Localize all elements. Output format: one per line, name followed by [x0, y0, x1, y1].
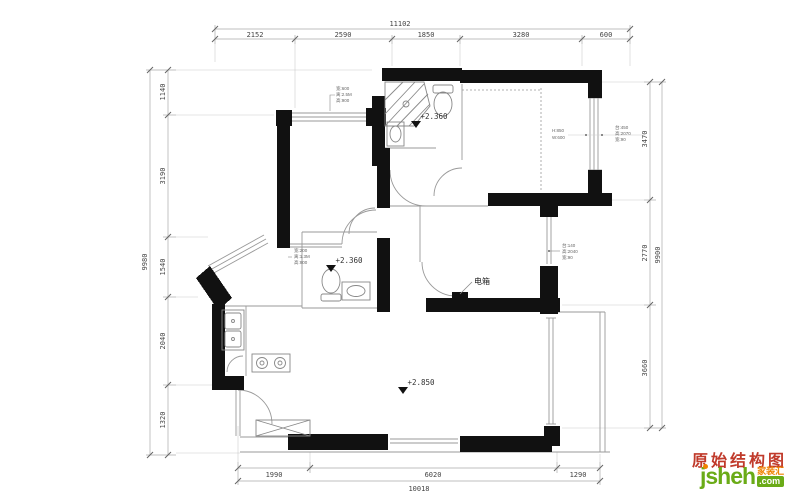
- logo-wordmark: jsheh: [700, 465, 755, 488]
- dim-bottom-seg: 1290: [570, 471, 587, 479]
- dim-right-seg: 2770: [641, 245, 649, 262]
- dim-top-total: 11102: [389, 20, 410, 28]
- level-label-living: +2.850: [407, 378, 435, 387]
- window-annotation: H:850: [552, 128, 565, 133]
- logo-tld: .com: [757, 476, 784, 487]
- window-annotation: 离:2.5M: [336, 91, 352, 98]
- window-annotation: W:600: [552, 135, 565, 140]
- window-annotation: 高:2070: [615, 130, 631, 137]
- sink: [342, 282, 370, 300]
- dim-right-seg: 3470: [641, 131, 649, 148]
- level-marker: [398, 387, 408, 394]
- window-annotation: 高:900: [336, 97, 350, 104]
- dim-top-seg: 3280: [513, 31, 530, 39]
- level-label-bath-top: +2.360: [420, 112, 448, 121]
- logo-dot-icon: [703, 464, 708, 469]
- window-annotation: 高:900: [294, 259, 308, 266]
- electric-box: [452, 292, 468, 301]
- shaft: [256, 420, 310, 436]
- dim-left-seg: 1540: [159, 259, 167, 276]
- window-annotation: 高:2040: [562, 248, 578, 255]
- dim-left-seg: 1320: [159, 412, 167, 429]
- dim-right-total: 9900: [654, 247, 662, 264]
- window-annotation: 台:140: [562, 242, 576, 249]
- logo-badge: 家装汇: [757, 466, 784, 476]
- dim-left-total: 9980: [141, 254, 149, 271]
- dim-right-seg: 3660: [641, 360, 649, 377]
- dimension-ticks: [147, 26, 665, 484]
- dim-left-seg: 2040: [159, 333, 167, 350]
- dim-top-seg: 2152: [247, 31, 264, 39]
- window-annotation: 宽:600: [336, 85, 350, 92]
- jsheh-logo: jsheh 家装汇 .com: [700, 465, 784, 488]
- dim-bottom-total: 10018: [408, 485, 429, 493]
- dim-top-seg: 600: [600, 31, 613, 39]
- window-annotation: 宽:90: [615, 136, 626, 143]
- level-marker: [411, 121, 421, 128]
- toilet: [321, 269, 341, 301]
- window-annotation: 台:450: [615, 124, 629, 131]
- dim-top-seg: 1850: [418, 31, 435, 39]
- window-annotation: 宽:90: [562, 254, 573, 261]
- dim-left-seg: 1140: [159, 84, 167, 101]
- dim-bottom-seg: 1990: [266, 471, 283, 479]
- dim-bottom-seg: 6020: [425, 471, 442, 479]
- cooktop: [252, 354, 290, 372]
- window-annotation: 离:1.3M: [294, 253, 310, 260]
- markers: [288, 95, 645, 394]
- dimension-text: 11102 2152 2590 1850 3280 600 9980 1140 …: [141, 20, 662, 493]
- floor-plan-page: 11102 2152 2590 1850 3280 600 9980 1140 …: [0, 0, 800, 500]
- dim-left-seg: 3190: [159, 168, 167, 185]
- plan-labels: +2.360 +2.360 +2.850 电箱 宽:600 离:2.5M 高:9…: [294, 85, 631, 387]
- electric-box-label: 电箱: [474, 276, 490, 286]
- level-label-bath-mid: +2.360: [335, 256, 363, 265]
- logo-name: jsheh: [700, 463, 755, 489]
- kitchen-sink: [222, 310, 244, 350]
- dim-top-seg: 2590: [335, 31, 352, 39]
- window-annotation: 宽:200: [294, 247, 308, 254]
- floor-plan-drawing: 11102 2152 2590 1850 3280 600 9980 1140 …: [0, 0, 800, 500]
- dashed-guides: [462, 88, 541, 192]
- level-marker: [326, 265, 336, 272]
